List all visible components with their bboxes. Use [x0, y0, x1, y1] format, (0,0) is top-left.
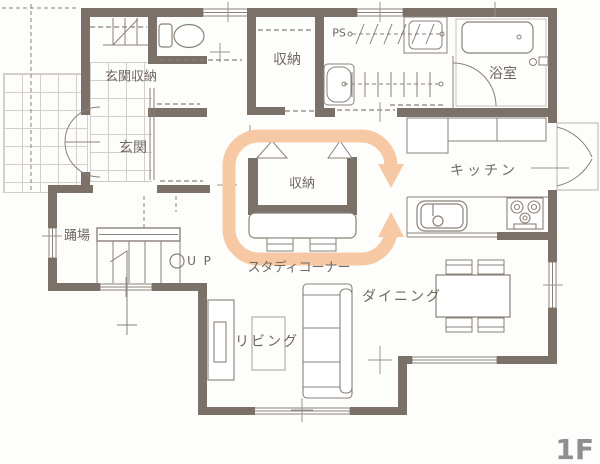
- study-desk-icon: [249, 213, 356, 238]
- closet-door-triangles: [257, 141, 352, 158]
- stairs-icon: [97, 228, 180, 335]
- stove-icon: [507, 198, 543, 229]
- dining-table-icon: [436, 275, 510, 317]
- label-pipe-space: PS: [332, 28, 346, 39]
- room-label-entrance-storage: 玄関収納: [105, 71, 157, 84]
- room-label-study-corner: スタディコーナー: [247, 262, 350, 275]
- sink-icon: [417, 201, 467, 231]
- room-label-kitchen: キッチン: [450, 164, 518, 178]
- room-label-upper-closet: 収納: [273, 53, 301, 67]
- room-label-bathroom: 浴室: [489, 67, 517, 81]
- shoe-shelf-lines: [103, 18, 148, 45]
- toilet-icon: [159, 24, 204, 48]
- back-door-arc-icon: [557, 123, 598, 190]
- washbasin-icon: [324, 64, 354, 105]
- floor-tag: 1F: [555, 436, 594, 464]
- bath-door-arc-icon: [453, 56, 496, 110]
- label-stairs-up: U P: [187, 255, 213, 267]
- up-circle-icon: [170, 254, 184, 268]
- sofa-icon: [303, 284, 352, 398]
- floor-plan: 玄関収納 収納 PS 浴室 玄関 踊場 収納 スタディコーナー U P キッチン…: [0, 0, 600, 464]
- kitchen-cabinets: [448, 118, 546, 141]
- room-label-center-closet: 収納: [289, 178, 315, 191]
- tv-board-icon: [208, 300, 234, 380]
- room-label-living: リビング: [235, 335, 299, 349]
- shower-faucet-icon: [530, 57, 549, 66]
- room-label-stair-landing: 踊場: [64, 230, 90, 243]
- front-door-arc-icon: [65, 107, 100, 177]
- room-label-entrance: 玄関: [119, 141, 147, 155]
- fridge-icon: [407, 118, 448, 153]
- entrance-step-lines: [150, 88, 154, 180]
- room-label-dining: ダイニング: [362, 290, 442, 304]
- study-chairs: [267, 238, 336, 251]
